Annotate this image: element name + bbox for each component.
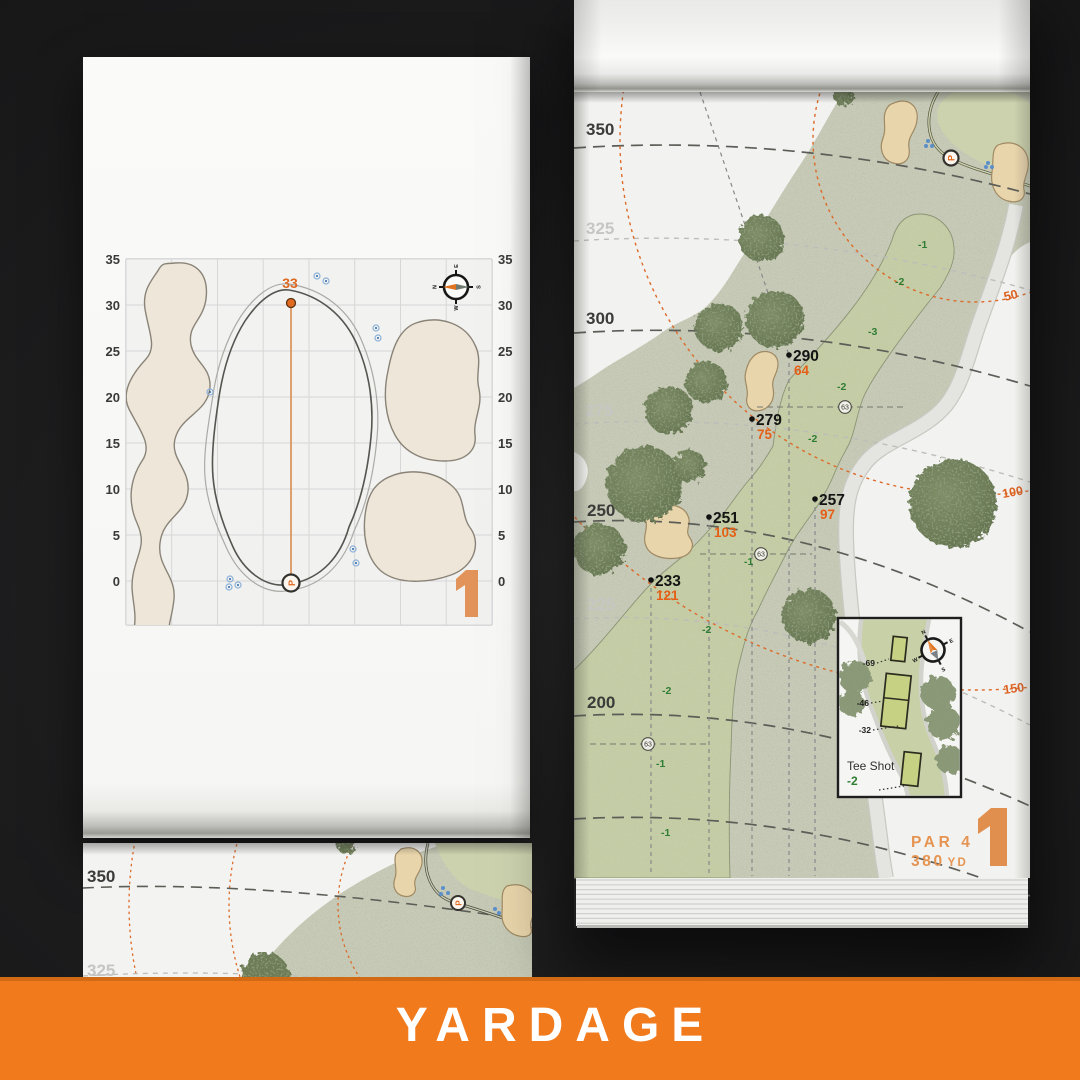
- svg-text:W: W: [454, 305, 460, 311]
- svg-text:350: 350: [586, 120, 614, 139]
- svg-text:PAR 4: PAR 4: [911, 834, 974, 851]
- svg-text:63: 63: [841, 405, 849, 412]
- svg-text:5: 5: [498, 528, 505, 543]
- svg-text:-3: -3: [868, 326, 877, 338]
- svg-text:5: 5: [113, 528, 120, 543]
- svg-text:20: 20: [498, 390, 512, 405]
- svg-text:-2: -2: [808, 433, 817, 445]
- svg-text:325: 325: [87, 961, 115, 978]
- svg-text:63: 63: [757, 552, 765, 559]
- svg-text:35: 35: [498, 252, 512, 267]
- svg-text:103: 103: [714, 525, 737, 540]
- svg-text:-1: -1: [661, 827, 670, 839]
- svg-text:300: 300: [586, 309, 614, 328]
- svg-text:225: 225: [587, 595, 615, 614]
- svg-text:33: 33: [282, 275, 298, 291]
- svg-text:350: 350: [87, 867, 115, 886]
- svg-text:0: 0: [498, 574, 505, 589]
- svg-text:20: 20: [106, 390, 120, 405]
- svg-text:200: 200: [587, 693, 615, 712]
- svg-text:10: 10: [106, 482, 120, 497]
- svg-text:-2: -2: [837, 381, 846, 393]
- svg-text:30: 30: [498, 298, 512, 313]
- svg-text:75: 75: [757, 427, 773, 442]
- svg-text:64: 64: [794, 363, 810, 378]
- svg-text:325: 325: [586, 219, 614, 238]
- svg-text:10: 10: [498, 482, 512, 497]
- svg-text:N: N: [433, 285, 439, 289]
- svg-text:E: E: [454, 264, 460, 268]
- svg-text:-1: -1: [744, 556, 753, 568]
- svg-text:15: 15: [106, 436, 120, 451]
- svg-text:0: 0: [113, 574, 120, 589]
- svg-text:-2: -2: [847, 774, 858, 788]
- svg-text:-2: -2: [895, 276, 904, 288]
- svg-text:250: 250: [587, 501, 615, 520]
- svg-text:121: 121: [656, 588, 679, 603]
- svg-text:-2: -2: [662, 685, 671, 697]
- svg-text:25: 25: [498, 344, 512, 359]
- svg-text:35: 35: [106, 252, 120, 267]
- svg-text:S: S: [477, 285, 483, 289]
- svg-text:P: P: [287, 580, 297, 586]
- svg-text:Tee Shot: Tee Shot: [847, 759, 895, 773]
- svg-text:25: 25: [106, 344, 120, 359]
- svg-text:-32: -32: [859, 725, 872, 735]
- svg-text:P: P: [947, 155, 957, 161]
- svg-text:30: 30: [106, 298, 120, 313]
- svg-text:97: 97: [820, 507, 835, 522]
- svg-text:-2: -2: [702, 624, 711, 636]
- svg-text:-69: -69: [863, 658, 876, 668]
- svg-text:63: 63: [644, 742, 652, 749]
- svg-text:-1: -1: [656, 758, 665, 770]
- svg-text:P: P: [455, 900, 464, 906]
- svg-text:-46: -46: [857, 698, 870, 708]
- svg-text:-1: -1: [918, 239, 927, 251]
- svg-text:15: 15: [498, 436, 512, 451]
